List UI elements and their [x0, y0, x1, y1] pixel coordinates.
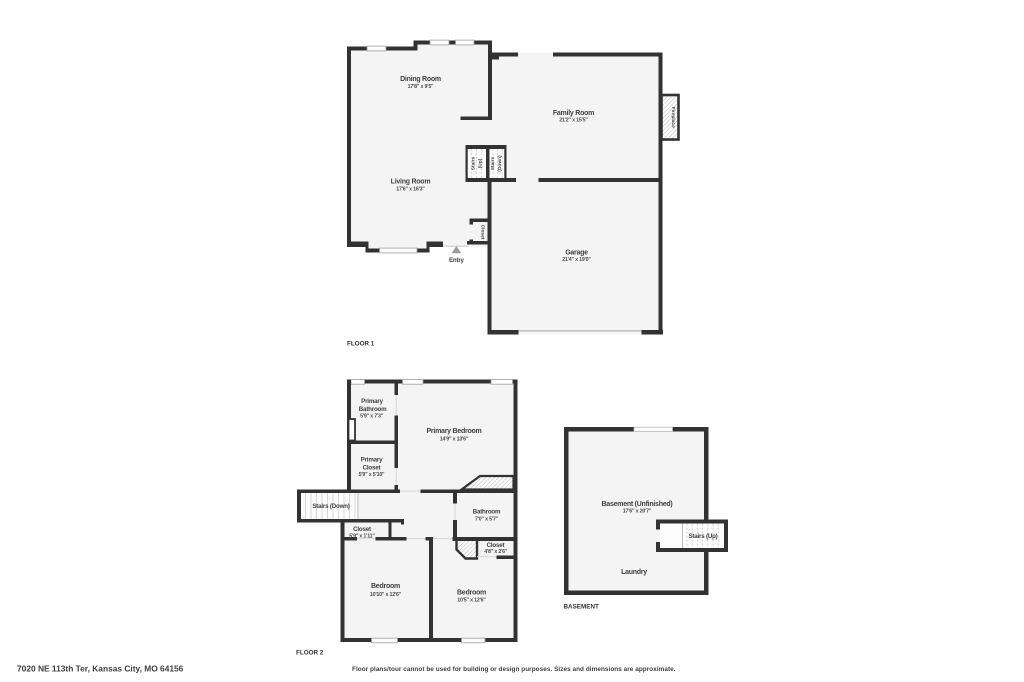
- svg-text:21'4" x 19'0": 21'4" x 19'0": [562, 257, 591, 263]
- svg-text:Dining Room: Dining Room: [400, 76, 441, 83]
- svg-text:Closet: Closet: [363, 465, 381, 472]
- svg-text:7020 NE 113th Ter, Kansas City: 7020 NE 113th Ter, Kansas City, MO 64156: [17, 663, 184, 673]
- svg-text:Stairs (Down): Stairs (Down): [312, 503, 349, 510]
- svg-text:BASEMENT: BASEMENT: [564, 603, 599, 610]
- svg-text:10'5" x 12'6": 10'5" x 12'6": [457, 598, 486, 604]
- svg-text:5'9" x 1'11": 5'9" x 1'11": [349, 534, 375, 540]
- svg-text:Bathroom: Bathroom: [359, 406, 387, 413]
- svg-text:17'6" x 20'7": 17'6" x 20'7": [623, 508, 652, 514]
- svg-text:Closet: Closet: [353, 526, 371, 533]
- svg-text:Primary: Primary: [361, 457, 383, 464]
- svg-text:Primary: Primary: [361, 398, 383, 405]
- svg-text:Stairs: Stairs: [471, 157, 477, 171]
- svg-text:Closet: Closet: [480, 225, 486, 240]
- svg-text:Living Room: Living Room: [391, 179, 431, 186]
- svg-text:5'9" x 7'3": 5'9" x 7'3": [360, 413, 384, 419]
- svg-text:Bedroom: Bedroom: [371, 583, 400, 590]
- svg-text:Bathroom: Bathroom: [473, 508, 501, 515]
- svg-text:Closet: Closet: [487, 542, 505, 549]
- svg-text:FLOOR 2: FLOOR 2: [296, 649, 324, 656]
- svg-text:4'8" x 2'6": 4'8" x 2'6": [484, 549, 508, 555]
- svg-text:7'0" x 5'7": 7'0" x 5'7": [475, 517, 499, 523]
- svg-text:Stairs: Stairs: [490, 157, 496, 171]
- svg-text:FLOOR 1: FLOOR 1: [347, 340, 375, 347]
- svg-text:10'10" x 12'6": 10'10" x 12'6": [370, 592, 402, 598]
- svg-text:Entry: Entry: [449, 257, 465, 264]
- svg-text:Basement (Unfinished): Basement (Unfinished): [602, 501, 673, 508]
- svg-text:Laundry: Laundry: [621, 569, 647, 576]
- svg-text:Family Room: Family Room: [553, 110, 594, 117]
- svg-text:(Down): (Down): [497, 155, 503, 172]
- svg-text:Stairs (Up): Stairs (Up): [688, 533, 717, 540]
- svg-text:5'9" x 5'10": 5'9" x 5'10": [359, 472, 385, 478]
- svg-text:17'6" x 16'3": 17'6" x 16'3": [396, 186, 425, 192]
- svg-text:14'9" x 13'6": 14'9" x 13'6": [440, 437, 469, 443]
- svg-text:Fireplace: Fireplace: [670, 107, 676, 128]
- svg-text:17'8" x 9'5": 17'8" x 9'5": [408, 84, 434, 90]
- svg-text:Primary Bedroom: Primary Bedroom: [427, 428, 482, 435]
- svg-text:Garage: Garage: [565, 250, 588, 257]
- svg-text:(Up): (Up): [478, 158, 484, 168]
- svg-text:Floor plans/tour cannot be use: Floor plans/tour cannot be used for buil…: [352, 666, 676, 673]
- svg-text:Bedroom: Bedroom: [457, 590, 486, 597]
- svg-text:21'2" x 15'5": 21'2" x 15'5": [559, 117, 588, 123]
